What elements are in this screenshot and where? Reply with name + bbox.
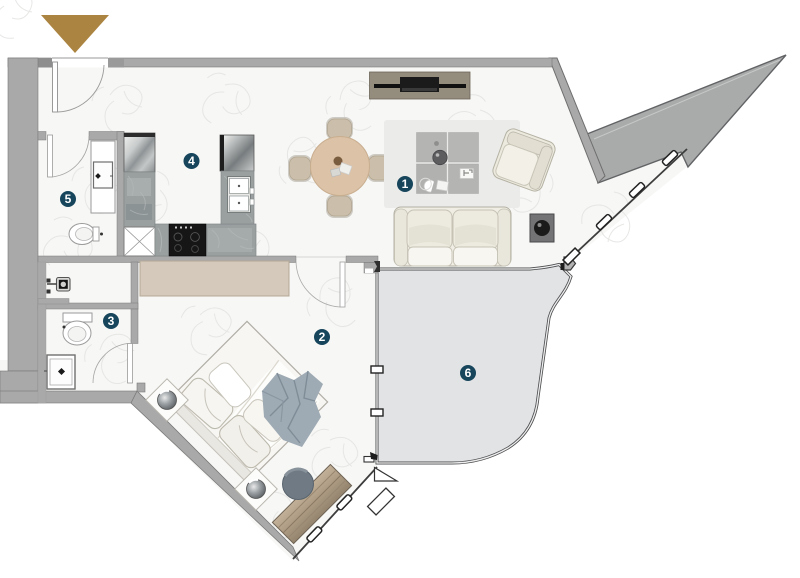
- svg-text:2: 2: [319, 330, 326, 344]
- svg-text:6: 6: [465, 366, 472, 380]
- svg-text:3: 3: [108, 314, 115, 328]
- svg-text:5: 5: [65, 192, 72, 206]
- svg-text:4: 4: [188, 154, 195, 168]
- svg-text:1: 1: [402, 177, 409, 191]
